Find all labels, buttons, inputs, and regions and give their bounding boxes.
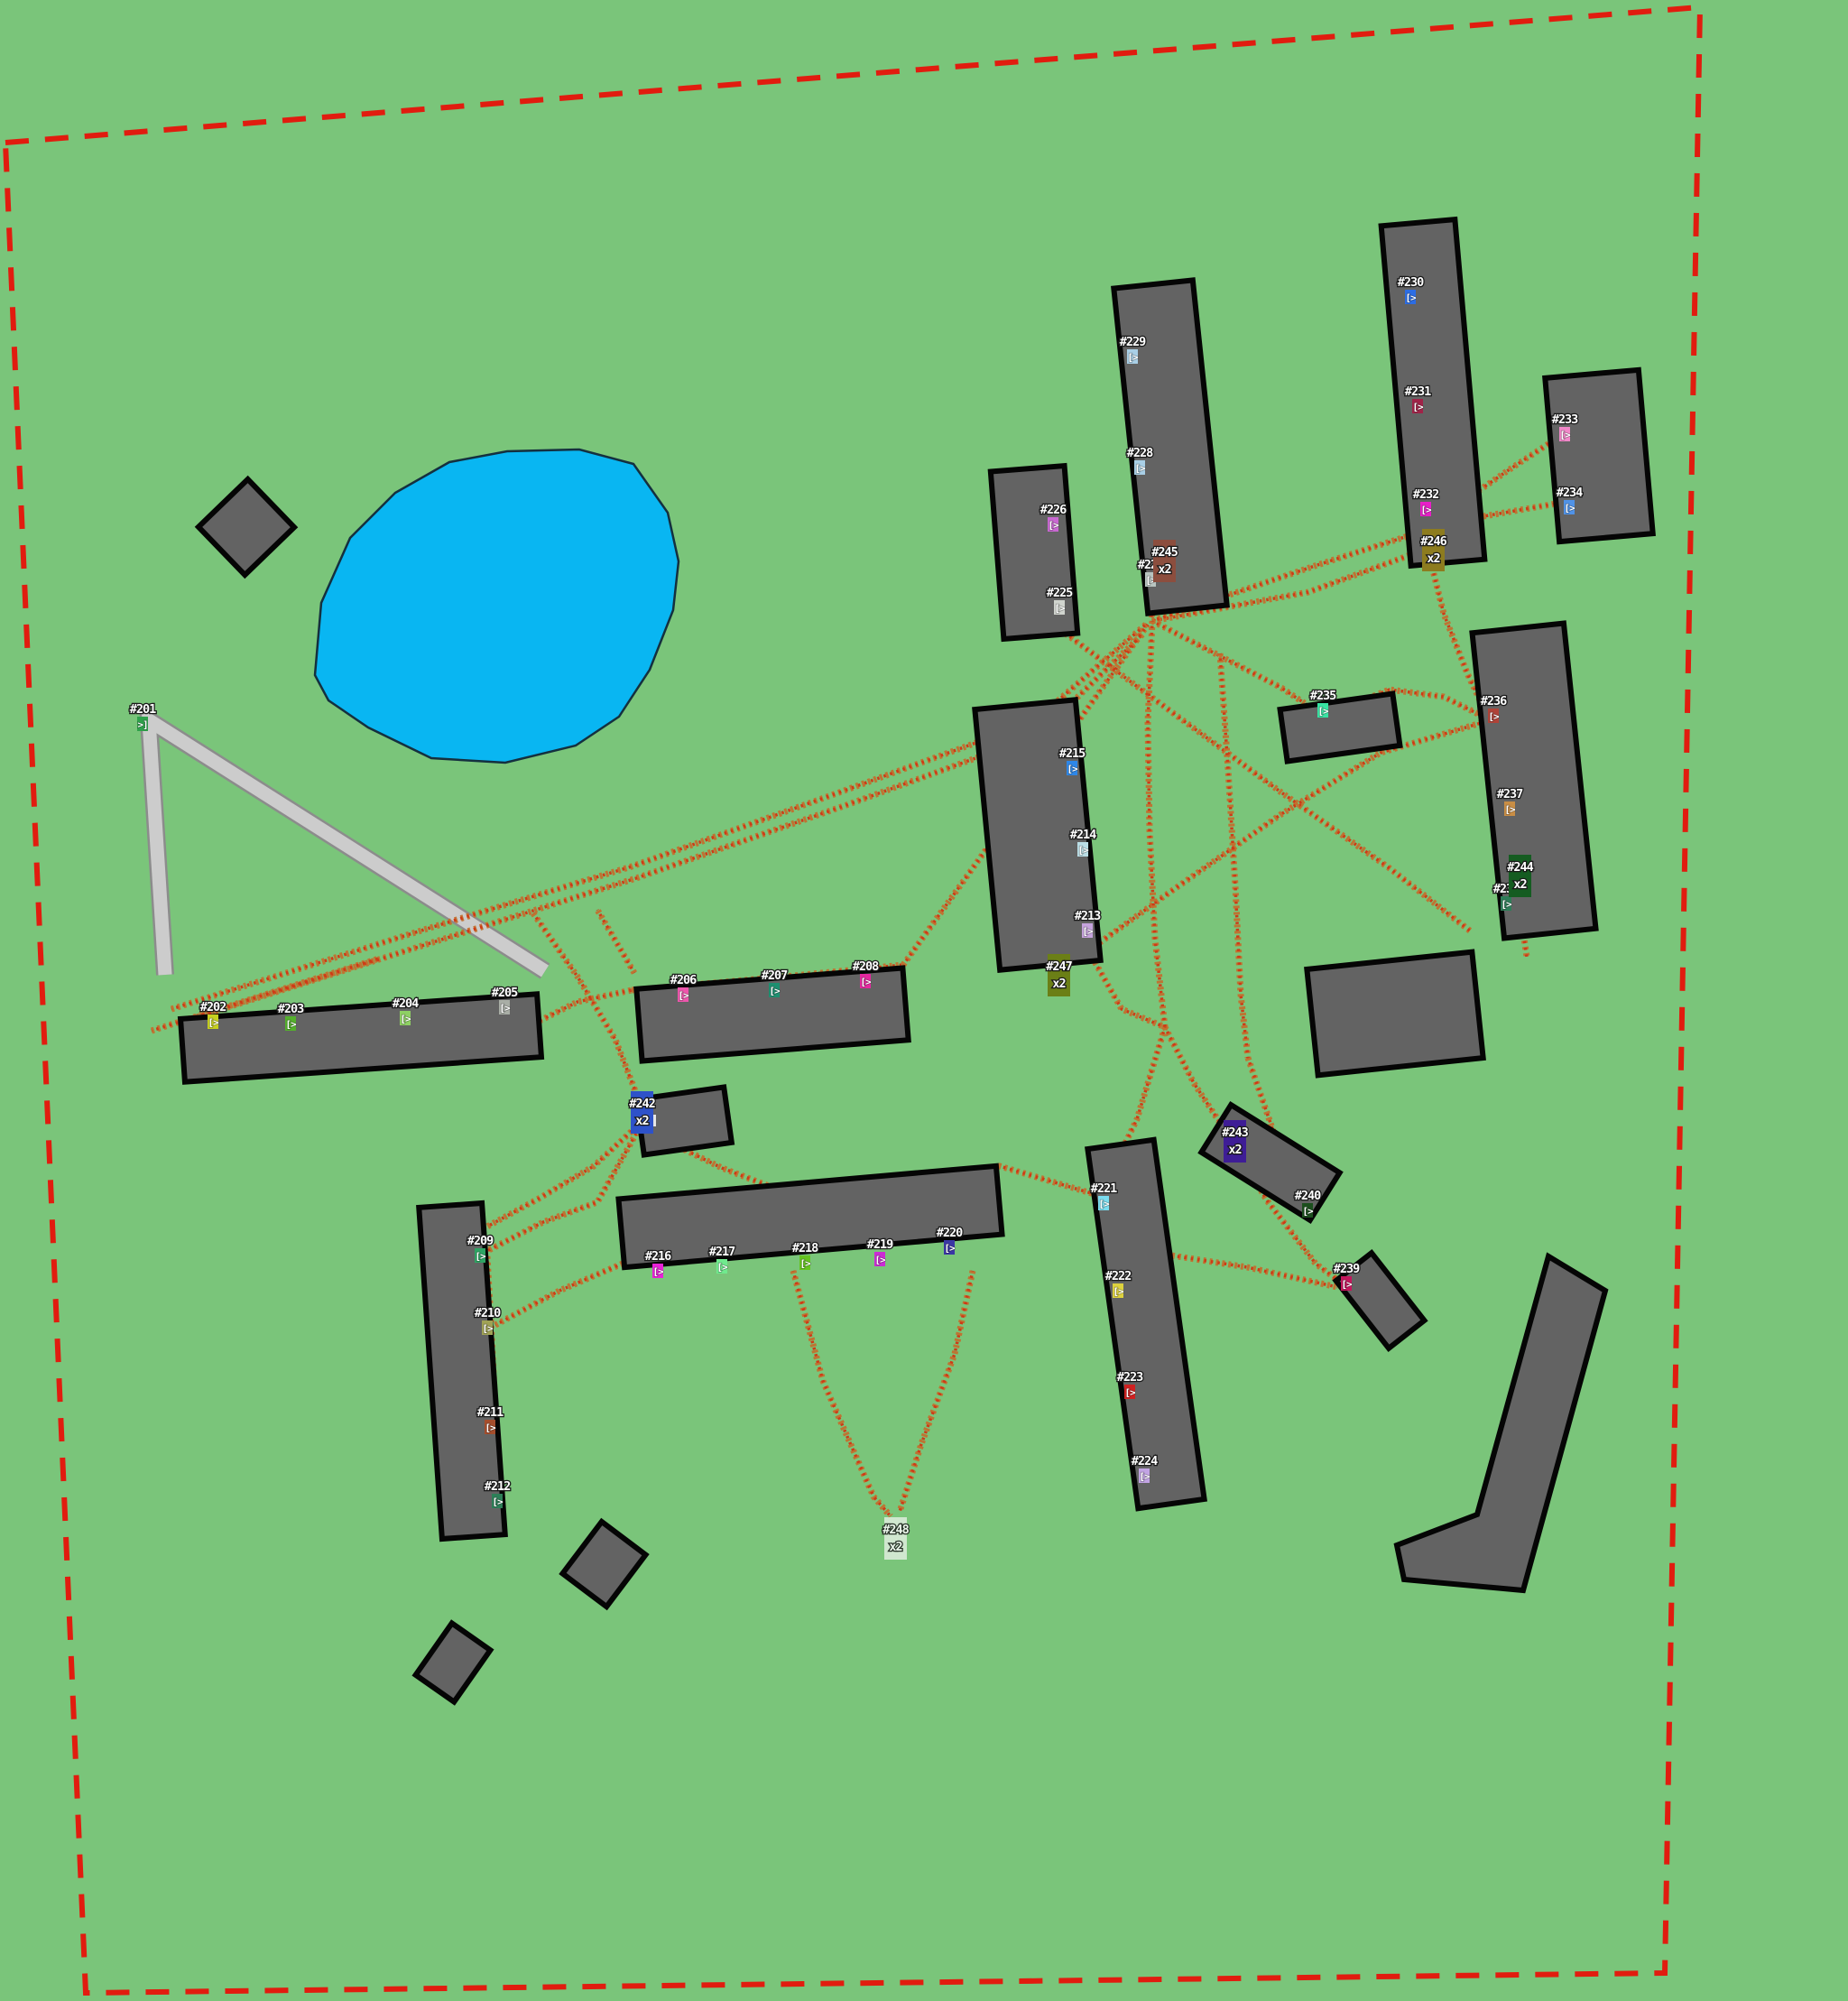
marker-label: #247: [1046, 959, 1072, 974]
marker-242[interactable]: #242x2: [629, 1091, 655, 1134]
marker-flag-icon: [>: [944, 1243, 956, 1255]
marker-count: x2: [1052, 977, 1065, 991]
marker-flag-icon: [>: [400, 1014, 411, 1025]
marker-label: #248: [882, 1523, 909, 1537]
marker-count: x2: [635, 1114, 648, 1128]
map-canvas[interactable]: #201>]#202[>#203[>#204[>#205[>#206[>#207…: [0, 0, 1848, 2001]
marker-label: #242: [629, 1097, 655, 1111]
marker-flag-icon: [>: [485, 1422, 496, 1434]
marker-label: #230: [1398, 275, 1424, 290]
marker-flag-icon: [>: [475, 1251, 486, 1263]
marker-flag-icon: [>: [1113, 1286, 1124, 1298]
marker-label: #217: [709, 1245, 735, 1259]
marker-label: #237: [1497, 787, 1523, 801]
marker-245[interactable]: #245x2: [1151, 540, 1178, 582]
marker-label: #216: [645, 1249, 671, 1264]
marker-248[interactable]: #248x2: [882, 1517, 909, 1560]
marker-flag-icon: [>: [769, 986, 781, 997]
marker-label: #245: [1151, 545, 1178, 560]
marker-flag-icon: [>: [1127, 352, 1139, 364]
marker-flag-icon: [>: [1302, 1206, 1314, 1218]
marker-flag-icon: [>: [1082, 926, 1094, 938]
marker-label: #210: [475, 1306, 501, 1320]
terrain-background: [0, 0, 1848, 2001]
marker-label: #224: [1132, 1454, 1158, 1468]
marker-247[interactable]: #247x2: [1046, 954, 1072, 996]
marker-label: #214: [1070, 828, 1096, 842]
marker-flag-icon: [>: [1504, 804, 1516, 816]
marker-flag-icon: [>: [874, 1255, 886, 1266]
building: [1545, 370, 1652, 542]
marker-flag-icon: [>: [799, 1258, 811, 1270]
marker-label: #215: [1059, 746, 1086, 761]
marker-flag-icon: [>: [1067, 764, 1078, 775]
marker-label: #211: [477, 1405, 504, 1420]
marker-flag-icon: [>: [716, 1262, 728, 1274]
marker-flag-icon: [>: [1048, 520, 1059, 532]
marker-flag-icon: [>: [1134, 463, 1146, 475]
marker-label: #246: [1420, 534, 1446, 549]
marker-flag-icon: [>: [208, 1017, 219, 1029]
marker-count: x2: [1513, 877, 1526, 892]
marker-flag-icon: [>: [678, 990, 689, 1002]
marker-flag-icon: [>: [1501, 899, 1512, 911]
hidden-marker-sliver: [653, 1115, 656, 1126]
marker-flag-icon: >]: [137, 719, 147, 731]
marker-label: #234: [1557, 486, 1583, 500]
marker-label: #236: [1481, 694, 1507, 709]
marker-flag-icon: [>: [1341, 1279, 1353, 1291]
marker-label: #206: [670, 973, 697, 987]
marker-label: #235: [1310, 689, 1336, 703]
marker-flag-icon: [>: [1488, 711, 1500, 723]
marker-flag-icon: [>: [1405, 292, 1417, 304]
marker-label: #208: [853, 959, 879, 974]
marker-label: #232: [1413, 487, 1439, 502]
marker-flag-icon: [>: [1098, 1199, 1110, 1210]
marker-label: #239: [1334, 1262, 1360, 1276]
marker-label: #203: [278, 1002, 304, 1016]
marker-flag-icon: [>: [1139, 1471, 1150, 1483]
marker-flag-icon: [>: [482, 1323, 494, 1335]
marker-label: #220: [937, 1226, 963, 1240]
building: [1307, 952, 1483, 1076]
marker-label: #204: [393, 996, 419, 1011]
marker-label: #231: [1405, 384, 1431, 399]
marker-flag-icon: [>: [1420, 505, 1432, 516]
marker-label: #207: [762, 968, 788, 983]
marker-label: #233: [1552, 412, 1578, 427]
marker-flag-icon: [>: [499, 1003, 511, 1014]
marker-243[interactable]: #243x2: [1222, 1120, 1248, 1163]
marker-label: #202: [200, 1000, 226, 1014]
marker-flag-icon: [>: [1564, 503, 1575, 514]
marker-244[interactable]: #244x2: [1507, 855, 1533, 897]
marker-label: #226: [1040, 503, 1067, 517]
marker-label: #218: [792, 1241, 818, 1255]
marker-label: #209: [467, 1234, 494, 1248]
marker-label: #225: [1047, 586, 1073, 600]
marker-label: #229: [1120, 335, 1146, 349]
marker-label: #244: [1507, 860, 1533, 875]
marker-label: #240: [1295, 1189, 1321, 1203]
marker-label: #228: [1127, 446, 1153, 460]
marker-label: #201: [130, 702, 156, 717]
marker-flag-icon: [>: [492, 1496, 504, 1508]
marker-label: #213: [1075, 909, 1101, 923]
marker-label: #243: [1222, 1126, 1248, 1140]
marker-count: x2: [1228, 1143, 1241, 1157]
marker-label: #222: [1105, 1269, 1132, 1283]
marker-label: #223: [1117, 1370, 1143, 1385]
marker-count: x2: [889, 1540, 901, 1554]
marker-246[interactable]: #246x2: [1420, 529, 1446, 571]
marker-flag-icon: [>: [652, 1266, 664, 1278]
marker-label: #212: [485, 1479, 511, 1494]
marker-flag-icon: [>: [860, 977, 872, 988]
marker-flag-icon: [>: [1124, 1387, 1136, 1399]
marker-count: x2: [1158, 562, 1170, 577]
marker-label: #219: [867, 1237, 893, 1252]
marker-label: #205: [492, 986, 518, 1000]
marker-flag-icon: [>: [1317, 706, 1329, 718]
marker-count: x2: [1427, 551, 1439, 566]
marker-label: #221: [1091, 1181, 1117, 1196]
marker-flag-icon: [>: [1077, 845, 1089, 857]
map-viewport[interactable]: #201>]#202[>#203[>#204[>#205[>#206[>#207…: [0, 0, 1848, 2001]
marker-flag-icon: [>: [1054, 603, 1066, 615]
marker-flag-icon: [>: [285, 1019, 297, 1031]
marker-flag-icon: [>: [1412, 402, 1424, 413]
marker-flag-icon: [>: [1559, 430, 1571, 441]
